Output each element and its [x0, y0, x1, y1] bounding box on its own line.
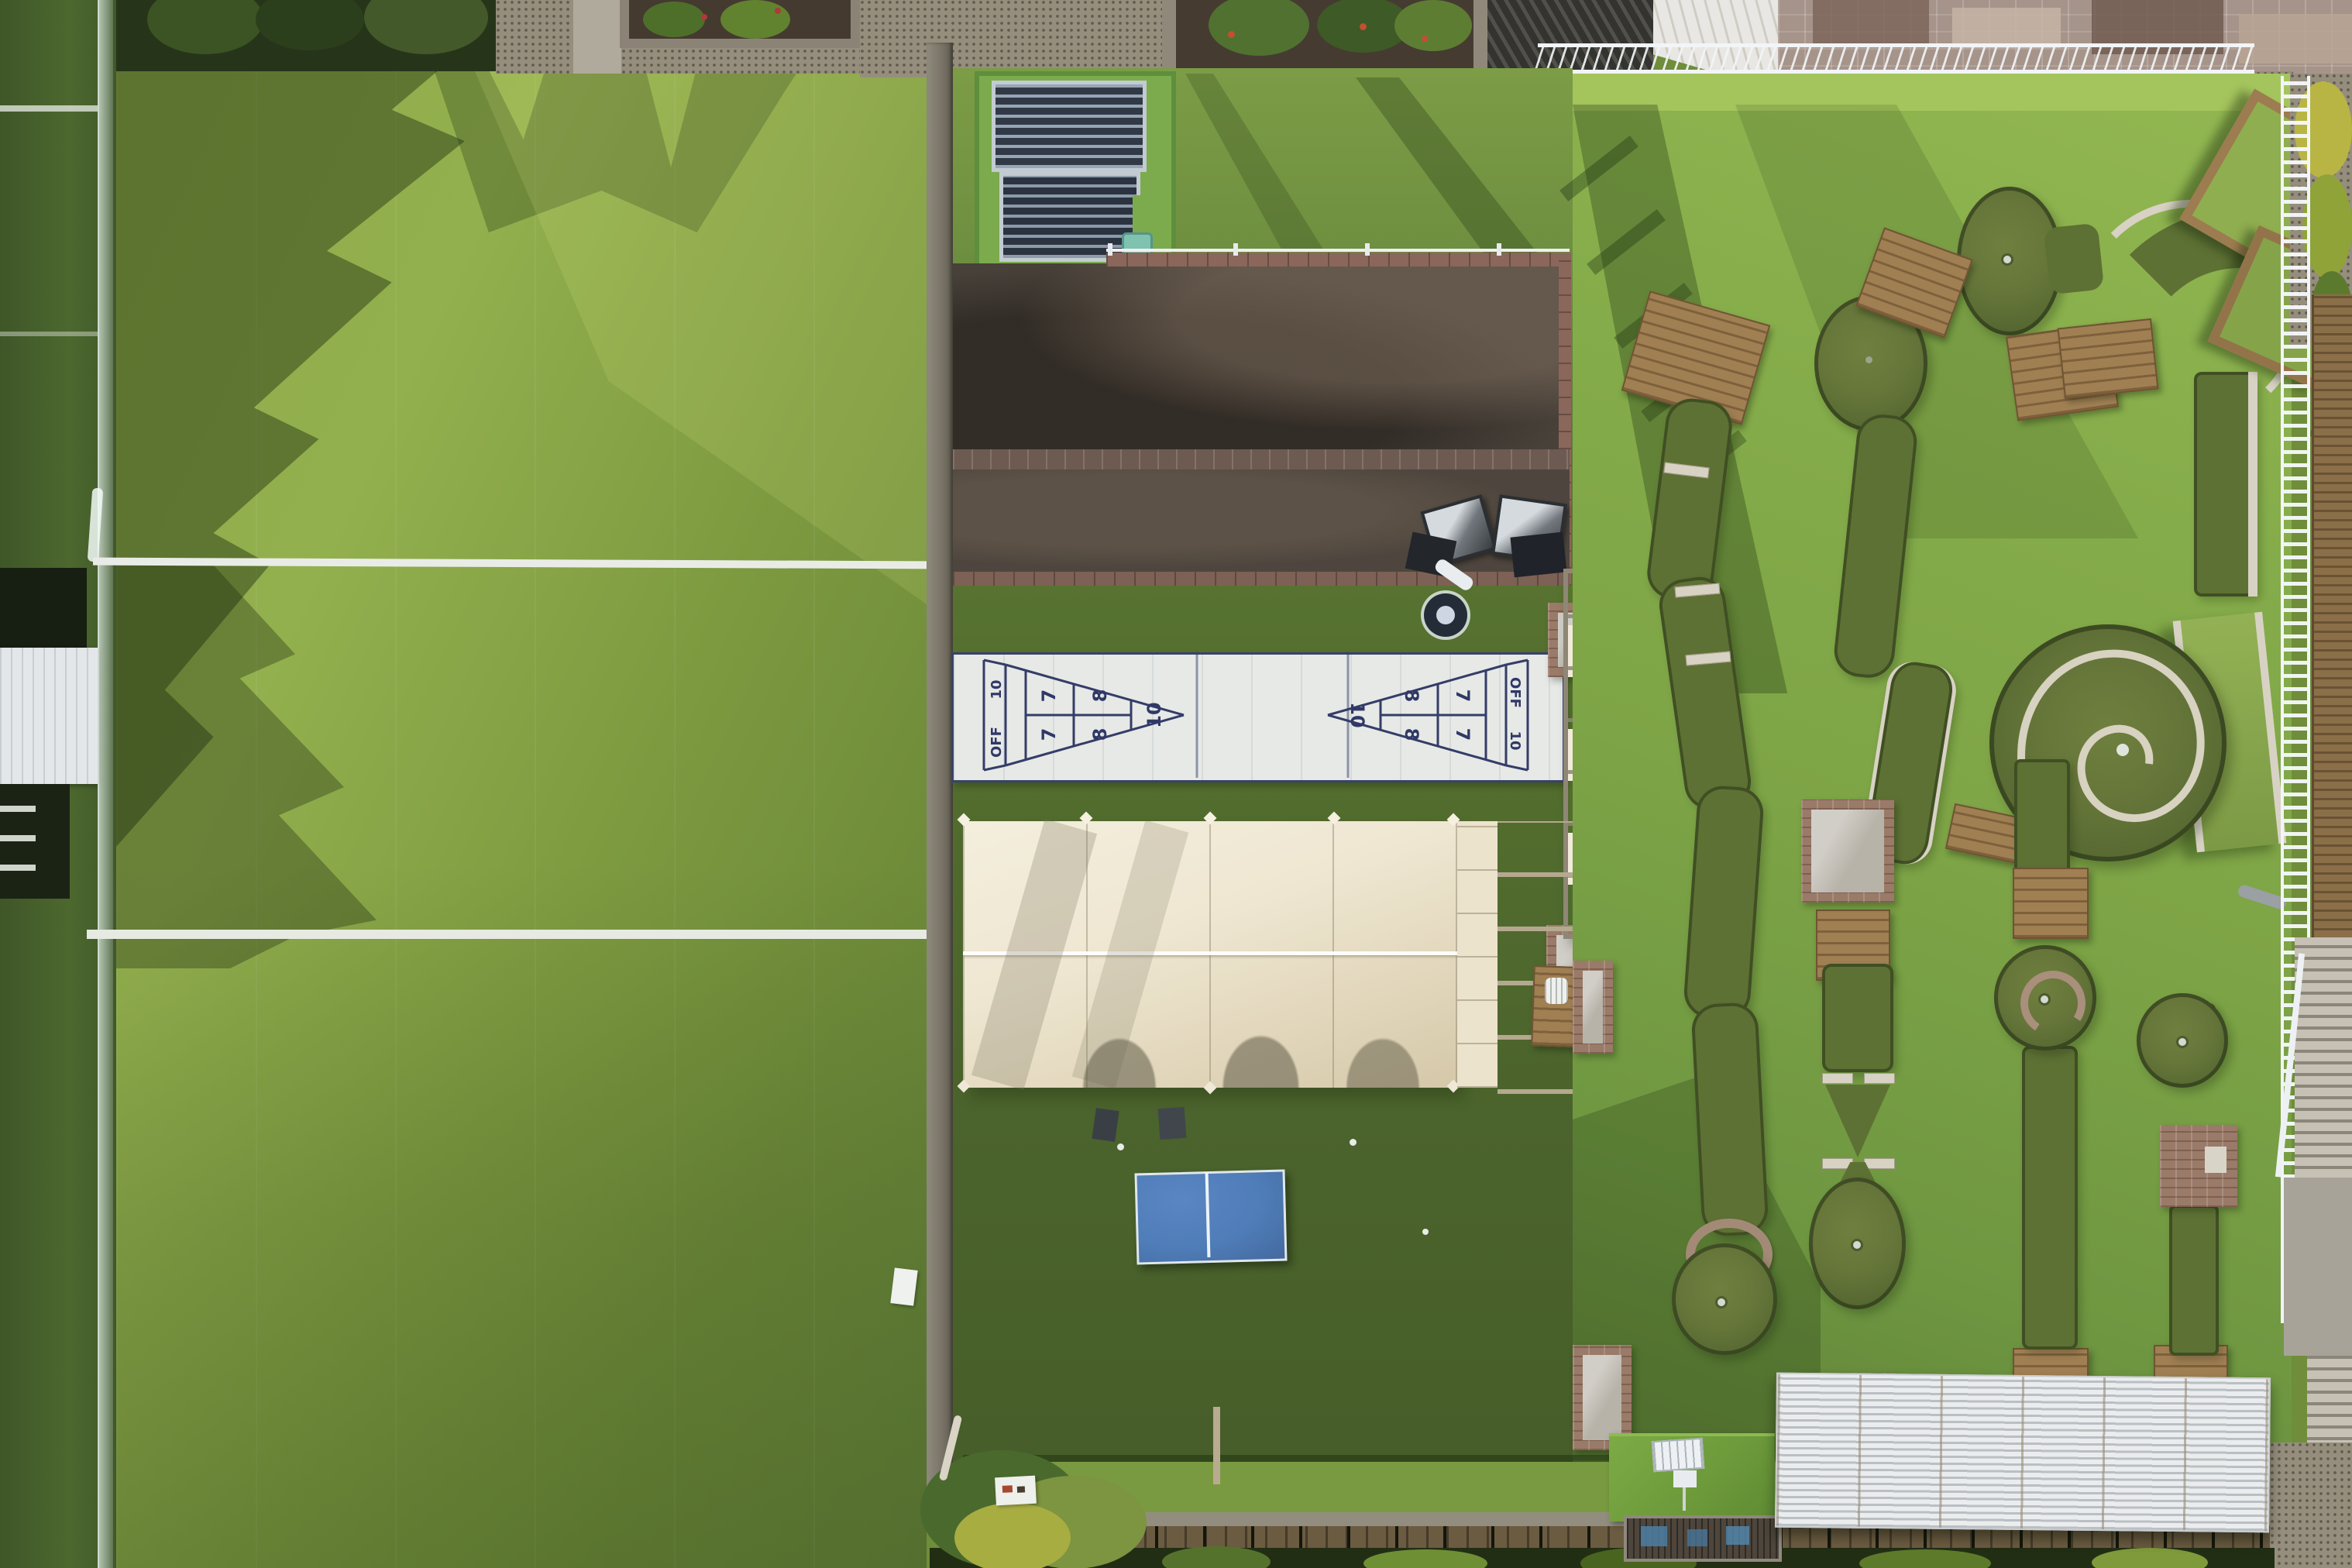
- triangle-obstacle: [1825, 1085, 1890, 1157]
- golf-lane: [2169, 1205, 2219, 1356]
- stair-landing: [2284, 1178, 2352, 1356]
- golf-hole: [2003, 256, 2011, 263]
- ping-pong-table: [1134, 1169, 1287, 1264]
- tent-side-panels: [1457, 821, 1498, 1088]
- score-8: 8: [1401, 728, 1422, 741]
- brick-pad: [1801, 799, 1894, 903]
- brick-patch: [2239, 14, 2352, 64]
- tent-arch-shadow: [1077, 1030, 1162, 1088]
- score-10: 10: [1507, 731, 1523, 750]
- louver-panel: [992, 81, 1147, 172]
- pad-core: [1811, 810, 1884, 892]
- small-white-sign: [890, 1267, 917, 1305]
- shrub: [720, 0, 790, 39]
- stone-wall: [860, 0, 1201, 77]
- fence-post: [1365, 243, 1370, 256]
- solar-panel: [1652, 1438, 1705, 1473]
- rooftop-aerial-photo: 10 8 8 7 7 10 OFF 10 8 8 7 7 OFF 10: [0, 0, 2352, 1568]
- shed-sign: [1673, 1470, 1697, 1487]
- dark-chair: [1158, 1107, 1187, 1140]
- golf-hole: [2178, 1038, 2186, 1046]
- score-8: 8: [1089, 728, 1111, 741]
- pad-core: [1583, 971, 1603, 1044]
- brick-divider: [953, 449, 1570, 469]
- shuffleboard-markings: 10 8 8 7 7 10 OFF 10 8 8 7 7 OFF 10: [951, 652, 1560, 778]
- tent-ridge-seam: [963, 951, 1457, 955]
- sign-mark: [1017, 1486, 1025, 1493]
- blue-bin: [1687, 1529, 1707, 1546]
- shed-front: [1624, 1515, 1782, 1562]
- court-line: [87, 930, 927, 939]
- brick-patch: [1952, 8, 2061, 48]
- frame-beams: [1498, 821, 1583, 1094]
- padel-court-line: [0, 332, 99, 336]
- tent-arch-shadow: [1340, 1030, 1425, 1088]
- white-speck: [1422, 1229, 1429, 1235]
- flower-dot: [701, 14, 707, 20]
- brick-cube-obstacle: [2160, 1125, 2237, 1207]
- shrub: [1394, 0, 1472, 51]
- flower-dot: [1228, 31, 1235, 38]
- pad-core: [1583, 1355, 1621, 1440]
- score-10: 10: [1143, 702, 1165, 727]
- bench-dark: [1510, 532, 1566, 578]
- score-8: 8: [1089, 689, 1111, 703]
- white-shelter-roof: [0, 648, 99, 784]
- blue-bin: [1641, 1526, 1667, 1546]
- mini-golf-sunband: [1573, 74, 2292, 111]
- golf-hole: [1718, 1298, 1725, 1306]
- dark-chair: [1092, 1108, 1119, 1142]
- light-fixture-center: [1436, 606, 1455, 624]
- tee-deck: [2013, 868, 2089, 939]
- brick-edge: [953, 572, 1570, 586]
- ground-sign: [995, 1476, 1037, 1506]
- stairs: [2307, 1356, 2352, 1449]
- stone-corner: [2270, 1442, 2352, 1568]
- tree-canopy: [954, 1503, 1071, 1568]
- score-7: 7: [1452, 689, 1473, 703]
- stairs: [2295, 937, 2352, 1178]
- tee-deck: [2058, 318, 2159, 399]
- score-7: 7: [1038, 728, 1060, 741]
- step-bar: [0, 835, 36, 841]
- score-10: 10: [1346, 702, 1368, 727]
- score-10: 10: [989, 679, 1005, 699]
- white-chair: [1545, 978, 1568, 1004]
- flower-dot: [1422, 36, 1428, 42]
- shed-sign-post: [1683, 1487, 1686, 1511]
- padel-court-line: [0, 105, 99, 112]
- score-7: 7: [1452, 728, 1473, 741]
- brick-pad: [1573, 961, 1613, 1054]
- flag-pole: [1213, 1407, 1220, 1484]
- white-speck: [1350, 1139, 1357, 1146]
- score-8: 8: [1401, 689, 1422, 703]
- flower-dot: [775, 8, 781, 14]
- score-7: 7: [1038, 689, 1060, 703]
- stone-gate: [1864, 1073, 1895, 1084]
- shrub: [643, 2, 705, 37]
- white-speck: [1117, 1143, 1124, 1150]
- tent-arch-shadow: [1216, 1027, 1305, 1088]
- sign-mark: [1002, 1485, 1013, 1493]
- score-off: OFF: [989, 727, 1005, 758]
- boundary-wall: [927, 43, 953, 1524]
- blue-bin: [1726, 1526, 1749, 1545]
- fence-post: [1497, 243, 1501, 256]
- golf-lane: [1690, 1002, 1769, 1237]
- golf-lane: [1822, 964, 1893, 1072]
- glass-wall: [98, 0, 113, 1568]
- brick-patch: [1813, 0, 1929, 46]
- flower-dot: [1360, 23, 1367, 30]
- wooden-walkway: [2312, 294, 2352, 937]
- fence-post: [1233, 243, 1238, 256]
- golf-hole: [2041, 995, 2048, 1003]
- dark-shelter-roof: [0, 568, 87, 648]
- stone-gate: [1822, 1073, 1853, 1084]
- white-fence-rail: [1538, 43, 2254, 47]
- golf-hole: [1853, 1241, 1861, 1249]
- golf-lane: [2022, 1046, 2078, 1350]
- golf-hole: [2116, 744, 2129, 756]
- white-slatted-roof: [1775, 1373, 2271, 1533]
- stone-edge: [2248, 372, 2257, 597]
- fence-post: [1108, 243, 1112, 256]
- step-bar: [0, 865, 36, 871]
- dark-shelter-roof: [0, 784, 70, 899]
- golf-hole: [1865, 356, 1872, 363]
- score-off: OFF: [1507, 677, 1523, 708]
- stone-gate: [1864, 1158, 1895, 1169]
- concrete-cap: [573, 0, 621, 74]
- cube-top-patch: [2205, 1147, 2226, 1173]
- step-bar: [0, 806, 36, 812]
- petanque-court-upper: [953, 263, 1570, 451]
- sports-lawn: [116, 0, 927, 1568]
